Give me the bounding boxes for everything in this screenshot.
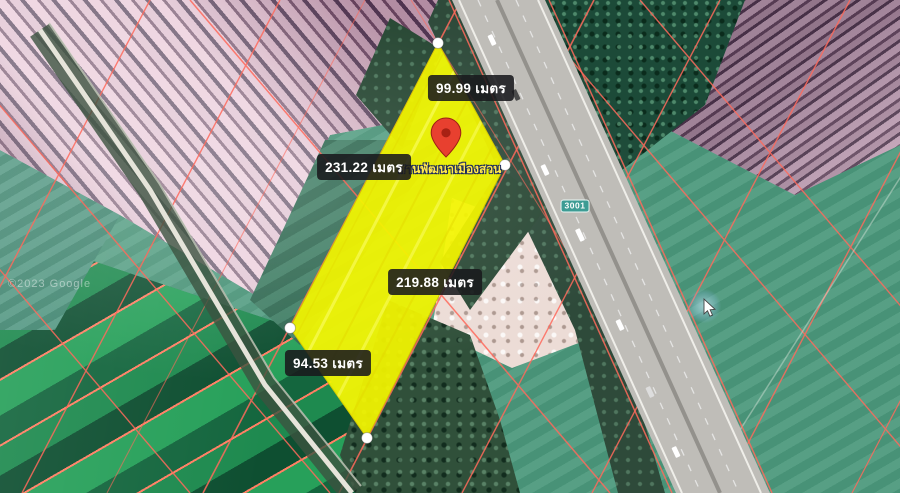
field-purple-topleft [0,0,900,493]
cursor-glow [687,289,721,323]
measurement-label-left-edge: 231.22 เมตร [317,154,411,180]
field-teal-base [0,0,900,493]
land-plot-polygon[interactable] [290,43,505,438]
satellite-map[interactable]: 99.99 เมตร 231.22 เมตร 219.88 เมตร 94.53… [0,0,900,493]
bare-soil-patch [0,0,900,493]
field-dark-green-midleft [0,0,900,493]
map-vector-overlay [0,0,900,493]
farm-track [700,170,900,493]
highway [449,0,772,493]
route-badge-3001: 3001 [561,200,590,213]
map-attribution: ©2023 Google [8,278,91,290]
measurement-label-right-edge: 219.88 เมตร [388,269,482,295]
plot-vertex-marker-top[interactable] [433,38,444,49]
forest-patch-topright [0,0,900,493]
rural-road [40,23,361,493]
plot-caption-watermark: สานพัฒนาเมืองสวน [398,160,501,179]
field-purple-topright [0,0,900,493]
vehicles [487,34,680,458]
tree-patch-top [0,0,900,493]
cursor-layer [0,0,900,493]
tree-band-along-highway [0,0,900,493]
screen-glare-overlay [0,0,900,493]
plot-vertex-marker-bottom[interactable] [362,433,373,444]
tree-patch-plot-bottom [0,0,900,493]
land-plot[interactable] [290,43,505,438]
plot-vertex-marker-left[interactable] [285,323,296,334]
field-teal-left-wedge [0,0,900,493]
measurement-label-bottom-edge: 94.53 เมตร [285,350,371,376]
tree-patch-plot-right [0,0,900,493]
measurement-label-top-edge: 99.99 เมตร [428,75,514,101]
location-pin-icon[interactable] [431,118,461,157]
field-green-bottomleft [0,0,900,493]
cadastral-lines [0,0,900,493]
